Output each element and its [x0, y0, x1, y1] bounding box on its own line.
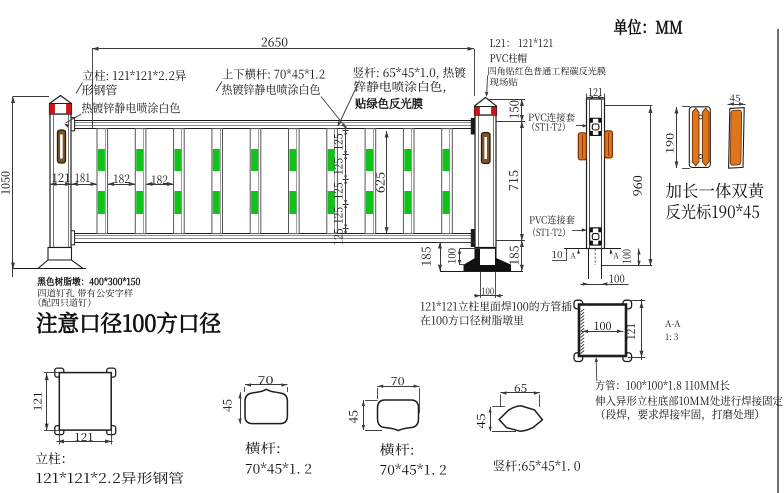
svg-text:185: 185 [417, 246, 435, 266]
svg-text:竖杆:65*45*1. 0: 竖杆:65*45*1. 0 [493, 455, 581, 474]
svg-text:185: 185 [505, 245, 523, 265]
svg-text:125: 125 [330, 183, 347, 200]
svg-text:100: 100 [481, 283, 494, 297]
svg-text:70: 70 [391, 373, 405, 389]
svg-text:121: 121 [623, 323, 639, 340]
svg-text:121: 121 [30, 391, 46, 411]
svg-text:（ST1-T2）: （ST1-T2） [527, 119, 570, 134]
svg-text:L21： 121*121: L21： 121*121 [490, 35, 554, 51]
svg-text:182: 182 [151, 171, 168, 188]
svg-text:190: 190 [663, 133, 678, 154]
svg-text:45: 45 [473, 413, 489, 428]
svg-text:70: 70 [258, 372, 274, 388]
svg-text:（ST1-T2）: （ST1-T2） [528, 224, 570, 239]
svg-text:181: 181 [75, 169, 91, 186]
svg-text:45: 45 [730, 91, 741, 105]
svg-text:形钢管: 形钢管 [81, 81, 117, 98]
svg-text:横杆:: 横杆: [380, 438, 415, 458]
svg-text:70*45*1. 2: 70*45*1. 2 [380, 459, 447, 479]
svg-text:现场贴: 现场贴 [490, 75, 519, 89]
svg-text:在100方口径树脂墩里: 在100方口径树脂墩里 [420, 312, 524, 328]
svg-text:锌静电喷涂白色,: 锌静电喷涂白色, [354, 78, 447, 95]
svg-text:贴绿色反光膜: 贴绿色反光膜 [355, 95, 423, 112]
svg-text:1: 3: 1: 3 [665, 330, 678, 343]
svg-text:10: 10 [552, 246, 563, 261]
svg-text:125: 125 [330, 134, 347, 151]
svg-text:100: 100 [594, 318, 612, 334]
svg-text:A-A: A-A [665, 317, 681, 330]
svg-text:单位：MM: 单位：MM [614, 13, 683, 38]
svg-text:2650: 2650 [261, 32, 288, 50]
svg-text:70*45*1. 2: 70*45*1. 2 [245, 457, 312, 477]
svg-text:715: 715 [504, 170, 522, 191]
svg-text:625: 625 [370, 172, 388, 193]
svg-text:125: 125 [330, 229, 347, 246]
svg-text:反光标190*45: 反光标190*45 [666, 198, 760, 223]
svg-text:100: 100 [445, 248, 460, 264]
svg-text:121*121*2.2异形钢管: 121*121*2.2异形钢管 [35, 467, 184, 487]
svg-text:125: 125 [330, 158, 347, 175]
svg-text:121: 121 [588, 84, 603, 100]
svg-text:热镀锌静电喷涂白色: 热镀锌静电喷涂白色 [81, 100, 180, 117]
svg-text:45: 45 [219, 399, 236, 412]
svg-text:960: 960 [628, 175, 646, 196]
svg-text:121: 121 [52, 169, 71, 186]
svg-text:注意口径100方口径: 注意口径100方口径 [36, 306, 221, 339]
svg-text:100: 100 [609, 270, 625, 286]
svg-text:A: A [570, 251, 576, 262]
svg-text:（段焊，要求焊接牢固，打磨处理）: （段焊，要求焊接牢固，打磨处理） [595, 406, 765, 422]
svg-text:方管：100*100*1.8 110MM长: 方管：100*100*1.8 110MM长 [595, 378, 730, 394]
svg-text:横杆:: 横杆: [245, 437, 281, 457]
svg-text:100: 100 [619, 249, 635, 264]
svg-text:45: 45 [344, 410, 361, 424]
svg-text:热镀锌静电喷涂白色: 热镀锌静电喷涂白色 [222, 81, 321, 98]
svg-text:182: 182 [113, 170, 130, 187]
svg-text:121: 121 [74, 429, 94, 445]
svg-text:1050: 1050 [0, 171, 14, 195]
svg-text:125: 125 [330, 207, 347, 224]
svg-text:150: 150 [505, 100, 523, 119]
svg-text:立柱：: 立柱： [35, 448, 73, 468]
svg-text:65: 65 [514, 380, 527, 396]
